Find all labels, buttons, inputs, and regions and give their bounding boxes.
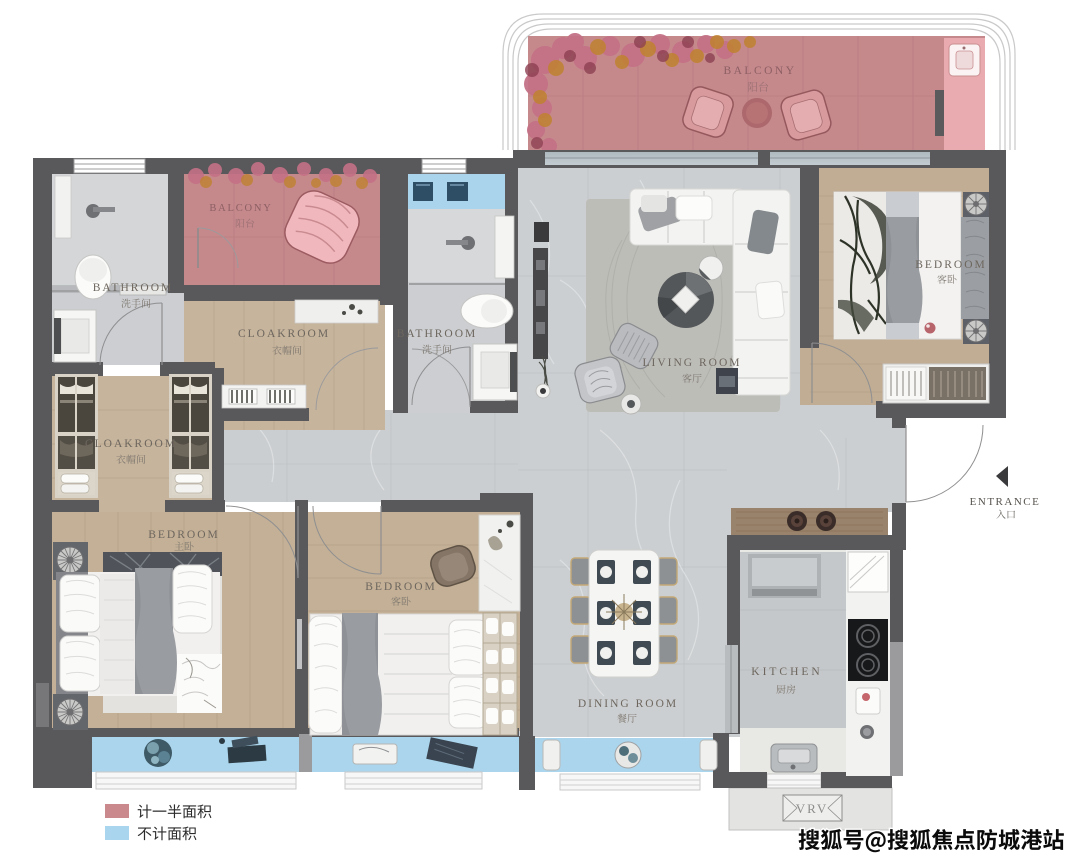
svg-text:KITCHEN: KITCHEN — [751, 666, 822, 678]
svg-text:ENTRANCE: ENTRANCE — [970, 496, 1041, 508]
svg-text:BATHROOM: BATHROOM — [397, 328, 478, 340]
svg-text:BEDROOM: BEDROOM — [365, 581, 437, 593]
svg-text:BEDROOM: BEDROOM — [148, 529, 220, 541]
svg-text:BALCONY: BALCONY — [209, 203, 272, 214]
svg-text:VRV: VRV — [796, 801, 828, 816]
svg-text:CLOAKROOM: CLOAKROOM — [238, 328, 330, 340]
svg-text:CLOAKROOM: CLOAKROOM — [85, 438, 177, 450]
svg-text:LIVING ROOM: LIVING ROOM — [643, 357, 742, 369]
svg-text:DINING ROOM: DINING ROOM — [578, 698, 678, 710]
svg-text:BEDROOM: BEDROOM — [915, 259, 987, 271]
svg-text:BALCONY: BALCONY — [723, 65, 796, 77]
svg-text:BATHROOM: BATHROOM — [93, 282, 174, 294]
